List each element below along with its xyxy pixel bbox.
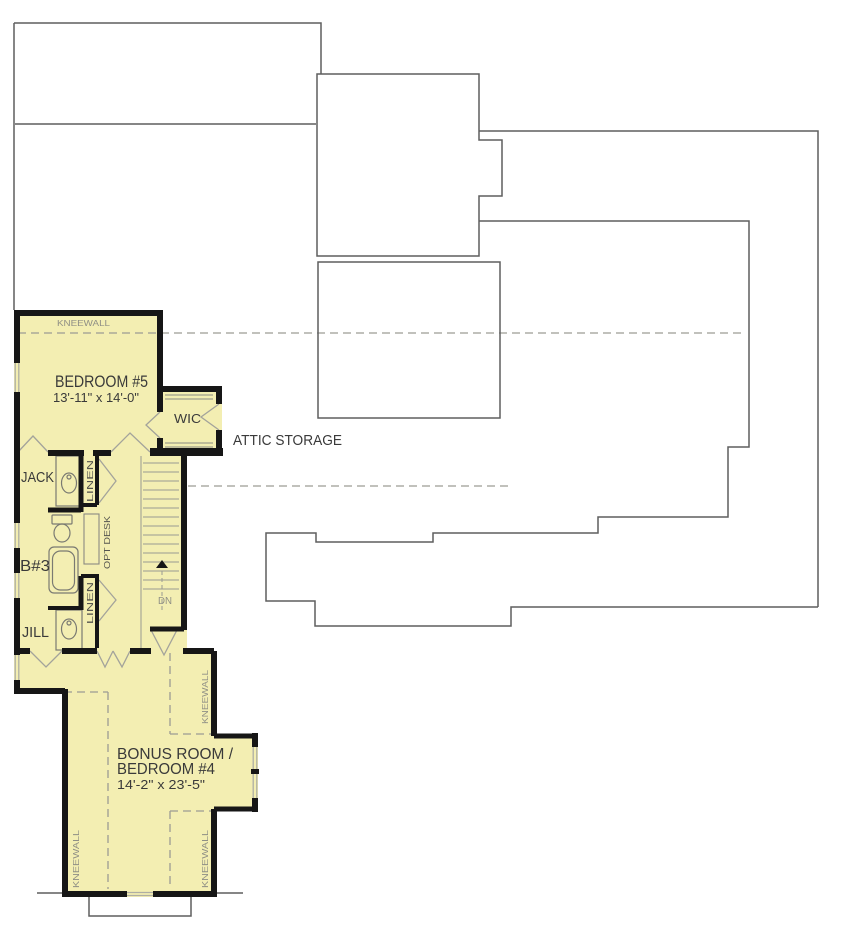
roof-rect-center-lower — [318, 262, 500, 418]
floor-plan-drawing: BEDROOM #5 13'-11" x 14'-0" WIC ATTIC ST… — [0, 0, 850, 926]
roof-rect-middle — [317, 74, 502, 256]
window-mullion-tick — [251, 769, 259, 774]
bonus-room-dims: 14'-2" x 23'-5" — [117, 777, 205, 792]
bedroom5-dims: 13'-11" x 14'-0" — [53, 390, 139, 405]
kneewall-label-right-upper: KNEEWALL — [200, 670, 210, 724]
bath3-label: B#3 — [20, 558, 50, 575]
linen-label-lower: LINEN — [86, 582, 95, 624]
roof-boundary-lower — [266, 221, 818, 626]
floor-plan-page: BEDROOM #5 13'-11" x 14'-0" WIC ATTIC ST… — [0, 0, 850, 926]
stoop-outline — [89, 897, 191, 916]
linen-label-upper: LINEN — [86, 460, 95, 502]
roof-rect-top-left — [14, 23, 321, 310]
kneewall-label-right-lower: KNEEWALL — [200, 830, 210, 888]
attic-storage-label: ATTIC STORAGE — [233, 433, 342, 449]
bonus-room-label-line2: BEDROOM #4 — [117, 761, 215, 778]
kneewall-label-left: KNEEWALL — [71, 830, 81, 888]
kneewall-label-top: KNEEWALL — [57, 318, 110, 328]
jill-label: JILL — [22, 625, 49, 641]
opt-desk-label: OPT DESK — [103, 515, 112, 569]
bedroom5-label: BEDROOM #5 — [55, 373, 148, 391]
roof-rect-right-outer — [479, 131, 818, 607]
down-label: DN — [158, 596, 172, 607]
jack-label: JACK — [21, 470, 54, 486]
wic-label: WIC — [174, 411, 201, 426]
